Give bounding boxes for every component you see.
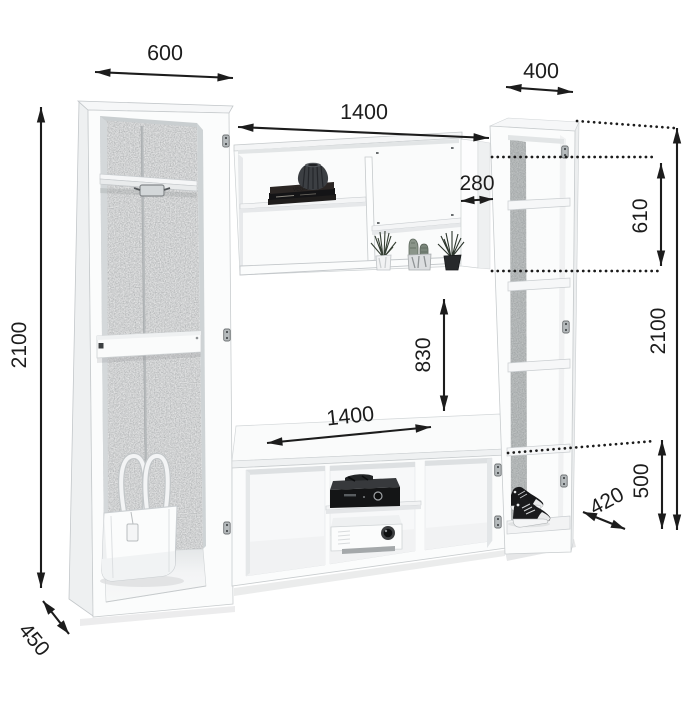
svg-text:830: 830 [412, 337, 435, 372]
svg-text:610: 610 [629, 198, 652, 233]
svg-text:1400: 1400 [340, 100, 388, 124]
svg-text:1400: 1400 [325, 402, 375, 431]
svg-text:280: 280 [459, 172, 494, 195]
svg-text:2100: 2100 [8, 322, 31, 369]
svg-text:600: 600 [147, 41, 183, 65]
svg-text:400: 400 [523, 59, 559, 83]
svg-text:2100: 2100 [647, 308, 670, 355]
svg-text:500: 500 [630, 463, 653, 498]
